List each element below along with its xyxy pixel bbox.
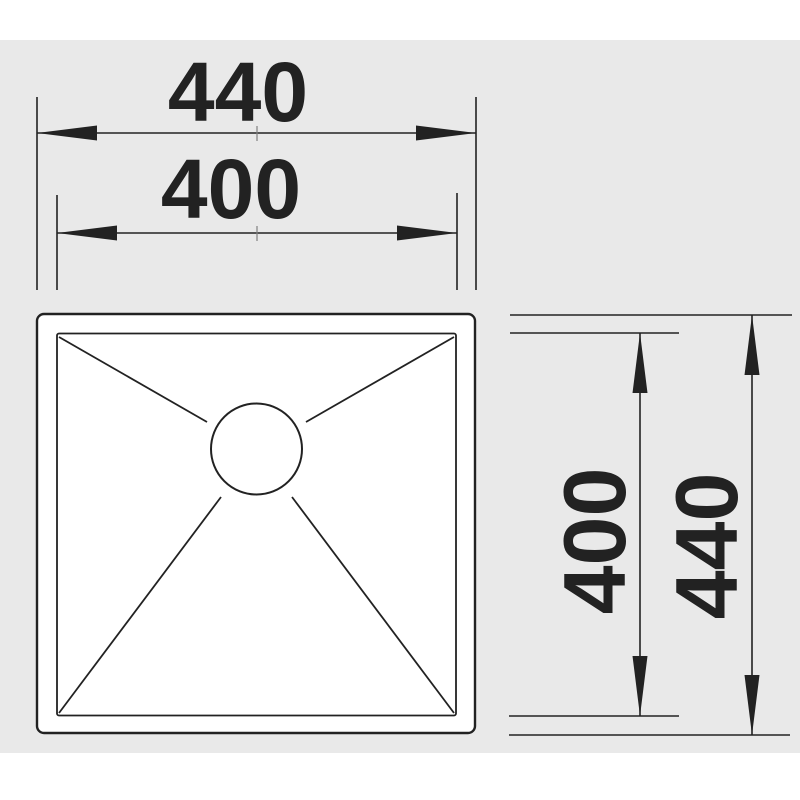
- drawing-page: 440 400 400 440: [0, 0, 800, 800]
- sink-basin-edge: [57, 334, 456, 716]
- dim-label-width-outer: 440: [168, 45, 308, 139]
- dim-label-height-outer: 440: [657, 473, 756, 620]
- dim-label-width-inner: 400: [161, 142, 301, 236]
- sink-dimension-drawing: 440 400 400 440: [0, 0, 800, 800]
- sink-outline-group: [37, 314, 475, 733]
- drain-outline: [211, 404, 302, 495]
- dim-label-height-inner: 400: [545, 468, 644, 615]
